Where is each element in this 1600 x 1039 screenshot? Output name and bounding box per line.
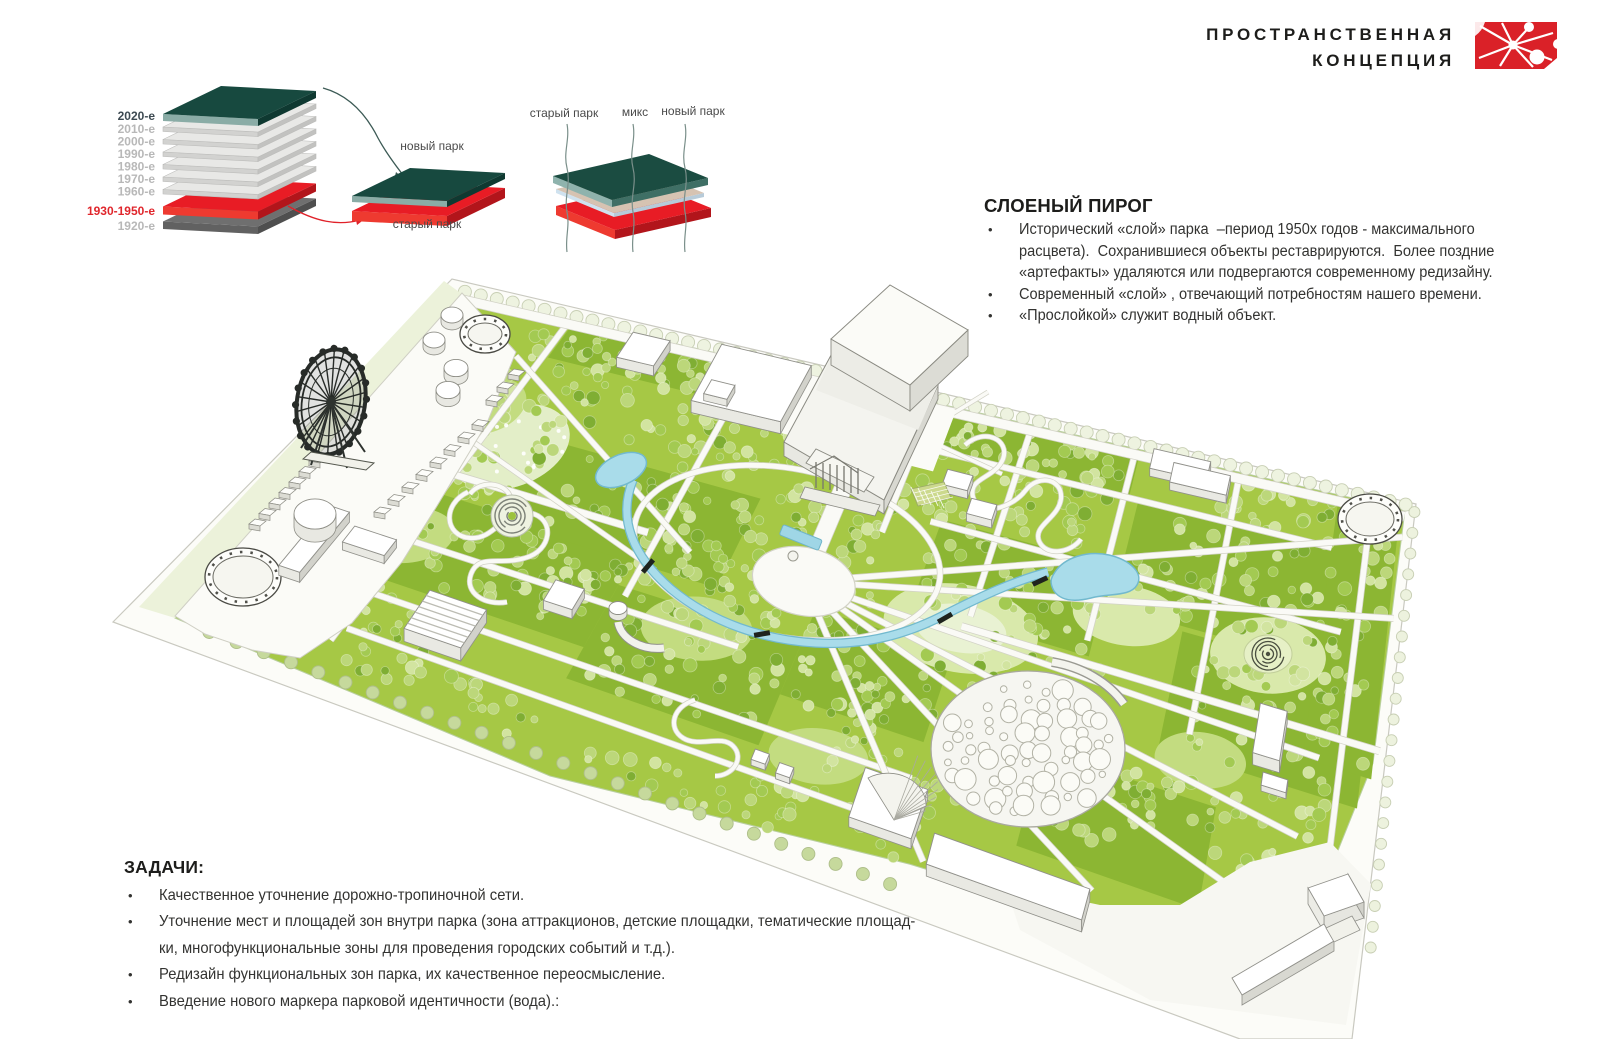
svg-text:1930-1950-е: 1930-1950-е	[87, 204, 155, 218]
svg-text:старый парк: старый парк	[393, 217, 462, 231]
svg-text:1960-е: 1960-е	[118, 185, 156, 199]
svg-text:2020-е: 2020-е	[118, 109, 156, 123]
svg-text:старый парк: старый парк	[530, 106, 599, 120]
svg-text:микс: микс	[622, 105, 648, 119]
svg-text:1920-е: 1920-е	[118, 219, 156, 233]
svg-text:новый парк: новый парк	[400, 139, 464, 153]
svg-text:новый парк: новый парк	[661, 104, 725, 118]
